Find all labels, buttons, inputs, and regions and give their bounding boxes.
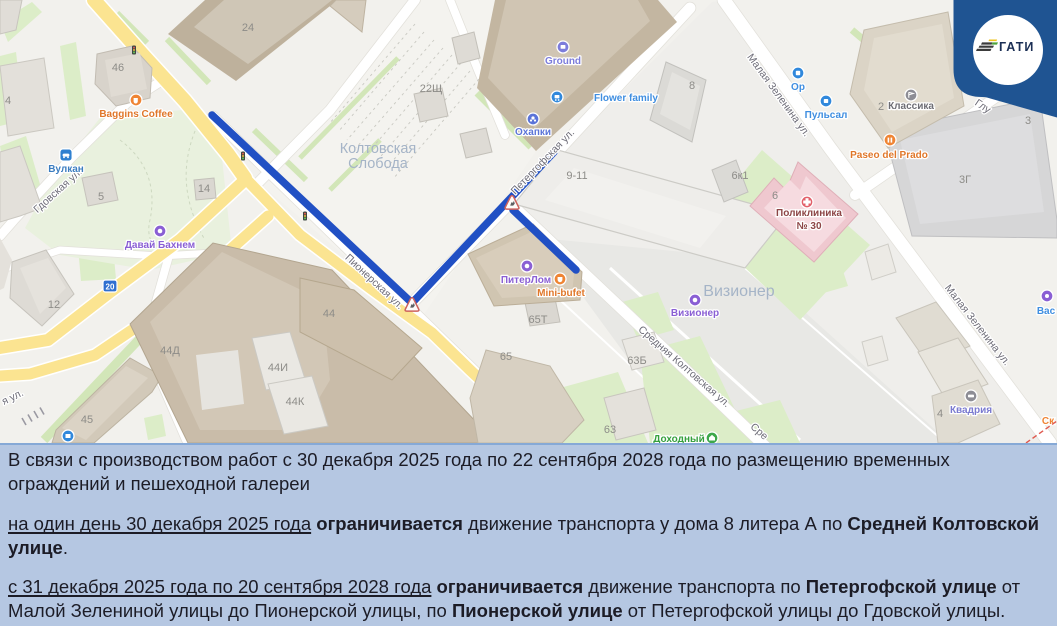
svg-text:Mini-bufet: Mini-bufet (537, 288, 585, 299)
svg-text:Доходный: Доходный (653, 434, 704, 443)
svg-text:5: 5 (98, 191, 104, 203)
svg-text:44К: 44К (286, 396, 305, 408)
svg-text:6к1: 6к1 (731, 170, 748, 182)
svg-text:ГАТИ: ГАТИ (999, 40, 1034, 54)
svg-text:Давай Бахнем: Давай Бахнем (125, 240, 195, 251)
svg-text:Визионер: Визионер (671, 308, 719, 319)
svg-text:ПитерЛом: ПитерЛом (501, 275, 551, 286)
svg-text:Paseo del Prado: Paseo del Prado (850, 150, 928, 161)
svg-text:45: 45 (81, 414, 93, 426)
svg-text:22Щ: 22Щ (420, 83, 443, 95)
svg-text:65Т: 65Т (529, 314, 548, 326)
svg-text:14: 14 (198, 183, 210, 195)
svg-text:Поликлиника: Поликлиника (776, 208, 842, 219)
svg-text:3Г: 3Г (959, 174, 971, 186)
svg-text:8: 8 (689, 80, 695, 92)
svg-text:4: 4 (5, 95, 11, 107)
svg-text:9-11: 9-11 (566, 170, 587, 182)
svg-text:44: 44 (323, 308, 335, 320)
svg-text:Классика: Классика (888, 101, 934, 112)
svg-text:4: 4 (937, 408, 943, 420)
svg-text:Ор: Ор (791, 82, 805, 93)
svg-text:6: 6 (772, 190, 778, 202)
svg-text:2: 2 (878, 101, 884, 113)
svg-text:Flower family: Flower family (594, 93, 658, 104)
svg-text:Квадрия: Квадрия (950, 405, 992, 416)
svg-text:46: 46 (112, 62, 124, 74)
svg-text:44И: 44И (268, 362, 288, 374)
svg-text:Baggins Coffee: Baggins Coffee (99, 109, 173, 120)
svg-text:Слобода: Слобода (348, 156, 409, 172)
svg-text:65: 65 (500, 351, 512, 363)
svg-text:Ск: Ск (1042, 416, 1055, 427)
svg-text:24: 24 (242, 22, 254, 34)
svg-text:20: 20 (106, 283, 115, 292)
svg-text:12: 12 (48, 299, 60, 311)
svg-text:Ground: Ground (545, 56, 581, 67)
svg-text:Пульсал: Пульсал (805, 110, 848, 121)
svg-text:Охапки: Охапки (515, 127, 551, 138)
svg-text:№ 30: № 30 (796, 221, 821, 232)
svg-text:3: 3 (1025, 115, 1031, 127)
svg-text:Вулкан: Вулкан (48, 164, 84, 175)
svg-text:Визионер: Визионер (703, 283, 775, 300)
svg-text:44Д: 44Д (160, 345, 180, 357)
svg-text:Вас: Вас (1037, 306, 1056, 317)
svg-text:Колтовская: Колтовская (340, 141, 417, 157)
svg-text:63Б: 63Б (627, 355, 646, 367)
svg-text:63: 63 (604, 424, 616, 436)
